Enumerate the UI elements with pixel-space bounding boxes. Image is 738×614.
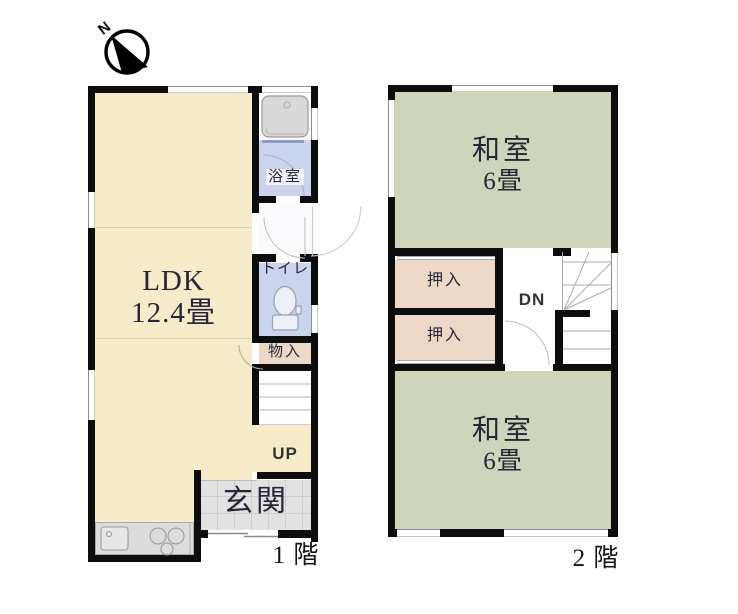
compass-north-label: N bbox=[95, 19, 114, 39]
washitsu-north-size: 6畳 bbox=[395, 168, 611, 196]
back-door-arc bbox=[311, 206, 361, 256]
toilet-icon bbox=[273, 287, 302, 331]
stairs-up-lines bbox=[259, 384, 311, 425]
toilet-label: トイレ bbox=[255, 261, 315, 278]
storage-label: 物入 bbox=[259, 344, 311, 361]
stairs-down-label: DN bbox=[507, 291, 557, 310]
entrance-label: 玄関 bbox=[203, 485, 309, 518]
washitsu-south-size: 6畳 bbox=[395, 448, 611, 476]
floor2-caption: 2 階 bbox=[560, 545, 632, 573]
washroom-door-arc bbox=[264, 217, 305, 258]
closet-north-label: 押入 bbox=[395, 272, 495, 290]
ldk-size-label: 12.4畳 bbox=[95, 298, 252, 330]
washitsu-south-label: 和室 bbox=[395, 416, 611, 447]
ldk-label: LDK bbox=[95, 266, 252, 298]
bath-label: 浴室 bbox=[255, 169, 315, 186]
washitsu-north-label: 和室 bbox=[395, 136, 611, 167]
floor-plan: N bbox=[0, 0, 738, 614]
kitchen-icon bbox=[101, 523, 190, 555]
bathtub-icon bbox=[262, 96, 308, 137]
floor1-caption: 1 階 bbox=[260, 542, 332, 570]
compass-icon: N bbox=[95, 19, 148, 73]
closet-south-label: 押入 bbox=[395, 327, 495, 345]
stairs-up-label: UP bbox=[259, 445, 311, 464]
